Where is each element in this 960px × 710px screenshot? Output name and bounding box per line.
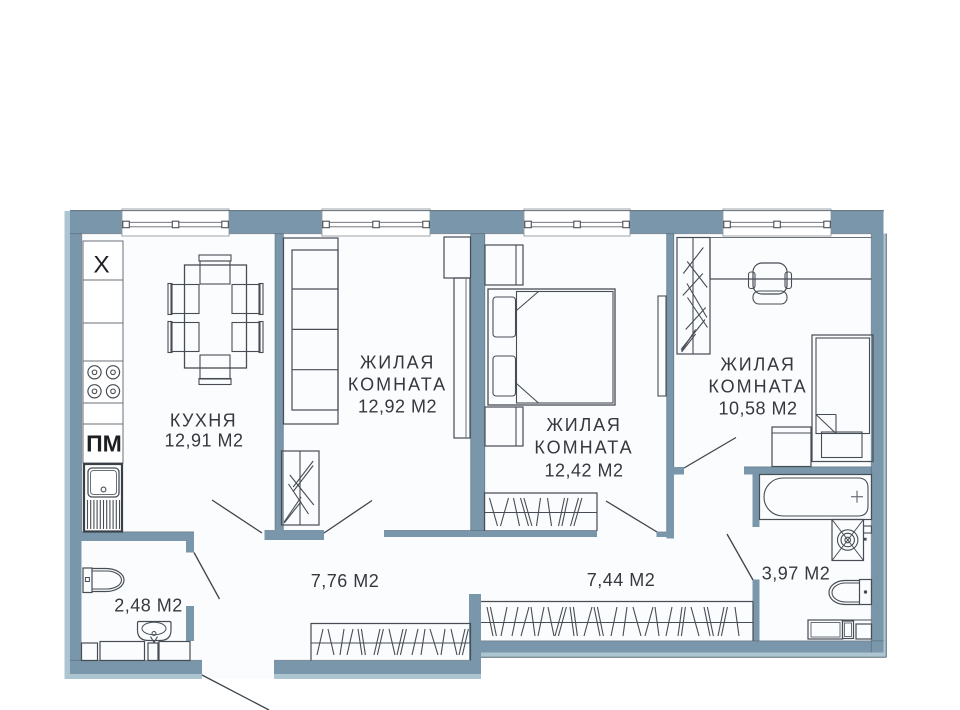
svg-text:ПМ: ПМ (86, 431, 122, 457)
svg-text:КУХНЯ: КУХНЯ (170, 411, 237, 431)
svg-text:Х: Х (93, 252, 109, 279)
svg-text:ЖИЛАЯ: ЖИЛАЯ (546, 415, 621, 435)
svg-text:КОМНАТА: КОМНАТА (708, 377, 807, 397)
svg-text:7,76 М2: 7,76 М2 (311, 571, 380, 591)
svg-text:7,44 М2: 7,44 М2 (587, 570, 656, 590)
svg-text:2,48 М2: 2,48 М2 (114, 596, 183, 616)
svg-text:12,92 М2: 12,92 М2 (358, 397, 437, 417)
svg-text:10,58 М2: 10,58 М2 (718, 399, 797, 419)
svg-text:12,42 М2: 12,42 М2 (544, 461, 623, 481)
svg-text:ЖИЛАЯ: ЖИЛАЯ (360, 353, 435, 373)
svg-text:КОМНАТА: КОМНАТА (348, 375, 447, 395)
svg-text:3,97 М2: 3,97 М2 (762, 564, 831, 584)
svg-text:ЖИЛАЯ: ЖИЛАЯ (720, 355, 795, 375)
svg-text:КОМНАТА: КОМНАТА (534, 438, 633, 458)
svg-text:12,91 М2: 12,91 М2 (164, 431, 243, 451)
